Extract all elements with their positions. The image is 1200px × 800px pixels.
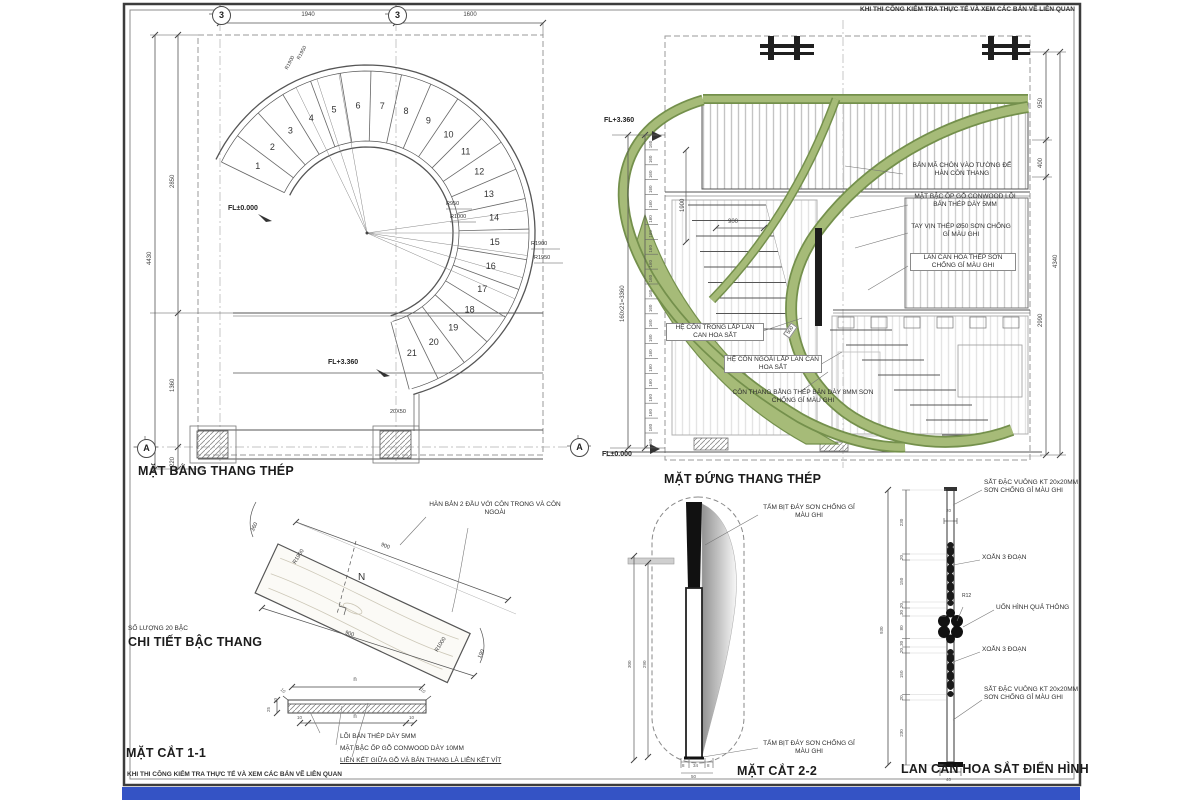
plan-step-number: 3 [288,125,293,135]
riser-dim-label: 160 [648,408,653,416]
plan-step-number: 9 [426,116,431,126]
step-detail-title: CHI TIẾT BẬC THANG [128,635,262,649]
s22-dim-50: 50 [691,774,696,779]
railing-ornament-radius: R12 [962,593,971,599]
riser-dim-label: 160 [648,334,653,342]
plan-step-number: 12 [474,167,484,177]
section-2-2-title: MẶT CẮT 2-2 [737,764,817,778]
s22-callout-top: TẤM BỊT ĐÁY SƠN CHỐNG GỈ MÀU GHI [758,504,860,520]
sheet-note-bottom: KHI THI CÔNG KIỂM TRA THỰC TẾ VÀ XEM CÁC… [127,771,342,778]
s22-dim-290: 290 [642,660,647,668]
plan-step-number: 4 [309,113,314,123]
railing-dim-label: 150 [899,670,904,678]
s11-callout-2: MẶT BẬC ỐP GỖ CONWOOD DÀY 10MM [340,745,464,752]
railing-callout-twist-top: XOẮN 3 ĐOẠN [982,554,1026,561]
s11-dim-end-left: 10 [297,715,302,720]
section-1-1-title: MẶT CẮT 1-1 [126,746,206,760]
step-axis-label: N [358,572,365,583]
riser-dim-label: 160 [648,245,653,253]
plan-step-number: 20 [429,337,439,347]
plan-step-number: 6 [355,100,360,110]
plan-dim-left-3: 220 [170,457,176,467]
s22-dim-8b: 8 [707,763,710,768]
riser-dim-label: 160 [648,379,653,387]
riser-dim-label: 160 [648,140,653,148]
railing-dim-total: 930 [879,626,884,634]
railing-callout-ornament: UỐN HÌNH QUẢ THÔNG [996,604,1069,611]
grid-bubble-a-left: A [137,439,156,458]
plan-dim-left-total: 4430 [147,252,153,265]
plan-radius-r1950: R1950 [534,255,550,261]
plan-step-number: 8 [403,106,408,116]
plan-step-number: 10 [443,129,453,139]
plan-radius-r950: R950 [446,201,459,207]
footer-bar [122,787,1080,800]
s11-dim-top: n [300,677,410,683]
s11-dim-end-right: 10 [409,715,414,720]
plan-title: MẶT BẰNG THANG THÉP [138,464,294,478]
riser-dim-label: 160 [648,185,653,193]
plan-dim-top-2: 1600 [400,12,540,18]
railing-dim-label: 20 [899,648,904,654]
elevation-dim-1900: 1900 [680,199,686,212]
elevation-dim-right-2990: 2990 [1038,314,1044,327]
callout-plate: BẢN MÃ CHÔN VÀO TƯỜNG ĐỂ HÀN CÔN THANG [905,162,1019,178]
railing-dim-label: 30 [899,640,904,646]
railing-dim-label: 150 [899,577,904,585]
riser-dim-label: 160 [648,304,653,312]
plan-step-number: 21 [407,348,417,358]
elevation-dim-right-400: 400 [1038,158,1044,168]
railing-dim-label: 20 [899,555,904,561]
railing-dim-label: 30 [899,610,904,616]
riser-dim-label: 160 [648,230,653,238]
elevation-level-base: FL±0.000 [602,451,632,458]
plan-dim-top-1: 1940 [238,12,378,18]
plan-step-number: 14 [489,213,499,223]
grid-bubble-3-left: 3 [212,6,231,25]
riser-dim-label: 160 [648,215,653,223]
plan-level-base: FL±0.000 [228,205,258,212]
elevation-dim-900: 900 [728,219,738,225]
plan-step-number: 2 [270,142,275,152]
riser-dim-label: 160 [648,319,653,327]
railing-callout-bar-top: SẮT ĐẶC VUÔNG KT 20x20MM SƠN CHỐNG GỈ MÀ… [984,479,1084,495]
riser-dim-label: 160 [648,423,653,431]
s11-dim-10: 10 [273,698,278,703]
elevation-dim-right-950: 950 [1038,98,1044,108]
riser-dim-label: 160 [648,259,653,267]
plan-column-dim: 20X50 [390,409,406,415]
s11-dim-25: 25 [266,707,271,712]
s11-callout-1: LÕI BẢN THÉP DÀY 5MM [340,733,416,740]
railing-callout-twist-bottom: XOẮN 3 ĐOẠN [982,646,1026,653]
plan-step-number: 5 [331,104,336,114]
elevation-title: MẶT ĐỨNG THANG THÉP [664,472,821,486]
drawing-canvas: 123456789101112131415161718192021 [0,0,1200,800]
callout-stringer-plate: CÔN THANG BẰNG THÉP BẢN DÀY 8MM SƠN CHỐN… [730,389,876,405]
s11-callout-3: LIÊN KẾT GIỮA GỖ VÀ BẢN THANG LÀ LIÊN KẾ… [340,757,501,764]
s22-dim-34: 34 [693,763,698,768]
riser-dim-label: 160 [648,349,653,357]
plan-step-number: 16 [486,261,496,271]
callout-railing: LAN CAN HOA THÉP SƠN CHỐNG GỈ MÀU GHI [910,253,1016,271]
spiral-center-point [366,232,369,235]
step-detail-qty: SỐ LƯỢNG 20 BẬC [128,625,188,632]
grid-bubble-a-right: A [570,438,589,457]
railing-dim-label: 230 [899,518,904,526]
riser-dim-label: 160 [648,155,653,163]
plan-step-number: 17 [477,284,487,294]
plan-step-number: 18 [465,305,475,315]
callout-tread: MẶT BẬC ỐP GỖ CONWOOD LÕI BẢN THÉP DÀY 5… [908,193,1022,209]
callout-outer-stringer: HỆ CÔN NGOÀI LẮP LAN CAN HOA SẮT [724,355,822,373]
riser-dim-label: 160 [648,200,653,208]
riser-dim-label: 160 [648,394,653,402]
plan-level-top: FL+3.360 [328,359,358,366]
railing-dim-base: 40 [946,777,951,782]
riser-dim-label: 160 [648,170,653,178]
plan-dim-left-1: 2850 [170,175,176,188]
plan-radius-r1900: R1900 [531,241,547,247]
elevation-dim-right-total: 4340 [1053,255,1059,268]
elevation-riser-formula: 160x21=3360 [620,285,626,322]
callout-weld: HÀN BẢN 2 ĐẦU VỚI CÔN TRONG VÀ CÔN NGOÀI [428,501,562,517]
riser-dim-label: 160 [648,364,653,372]
riser-dim-label: 160 [648,274,653,282]
plan-step-number: 19 [448,323,458,333]
sheet-note-top: KHI THI CÔNG KIỂM TRA THỰC TẾ VÀ XEM CÁC… [560,6,1075,13]
riser-dim-label: 160 [648,289,653,297]
railing-dim-bar-width: 20 [946,508,951,513]
elevation-level-top: FL+3.360 [604,117,634,124]
railing-dim-label: 20 [899,695,904,701]
s11-dim-bottom: n [300,714,410,720]
callout-handrail: TAY VỊN THÉP Ø50 SƠN CHỐNG GỈ MÀU GHI [908,223,1014,239]
railing-title: LAN CAN HOA SẮT ĐIỂN HÌNH [901,762,1089,776]
plan-radius-r1000: R1000 [450,214,466,220]
s22-dim-8a: 8 [682,763,685,768]
s22-callout-bottom: TẤM BỊT ĐÁY SƠN CHỐNG GỈ MÀU GHI [758,740,860,756]
railing-callout-bar-bottom: SẮT ĐẶC VUÔNG KT 20x20MM SƠN CHỐNG GỈ MÀ… [984,686,1084,702]
railing-dim-label: 20 [899,603,904,609]
riser-dim-label: 160 [648,438,653,446]
plan-step-number: 7 [380,101,385,111]
grid-bubble-3-right: 3 [388,6,407,25]
s22-dim-300: 300 [627,660,632,668]
plan-step-number: 1 [255,161,260,171]
callout-inner-stringer: HỆ CÔN TRONG LẮP LAN CAN HOA SẮT [666,323,764,341]
plan-dim-left-2: 1360 [170,379,176,392]
plan-step-number: 13 [484,189,494,199]
plan-step-number: 11 [461,147,470,157]
railing-dim-label: 230 [899,729,904,737]
railing-dim-label: 80 [899,625,904,631]
plan-step-number: 15 [490,237,500,247]
